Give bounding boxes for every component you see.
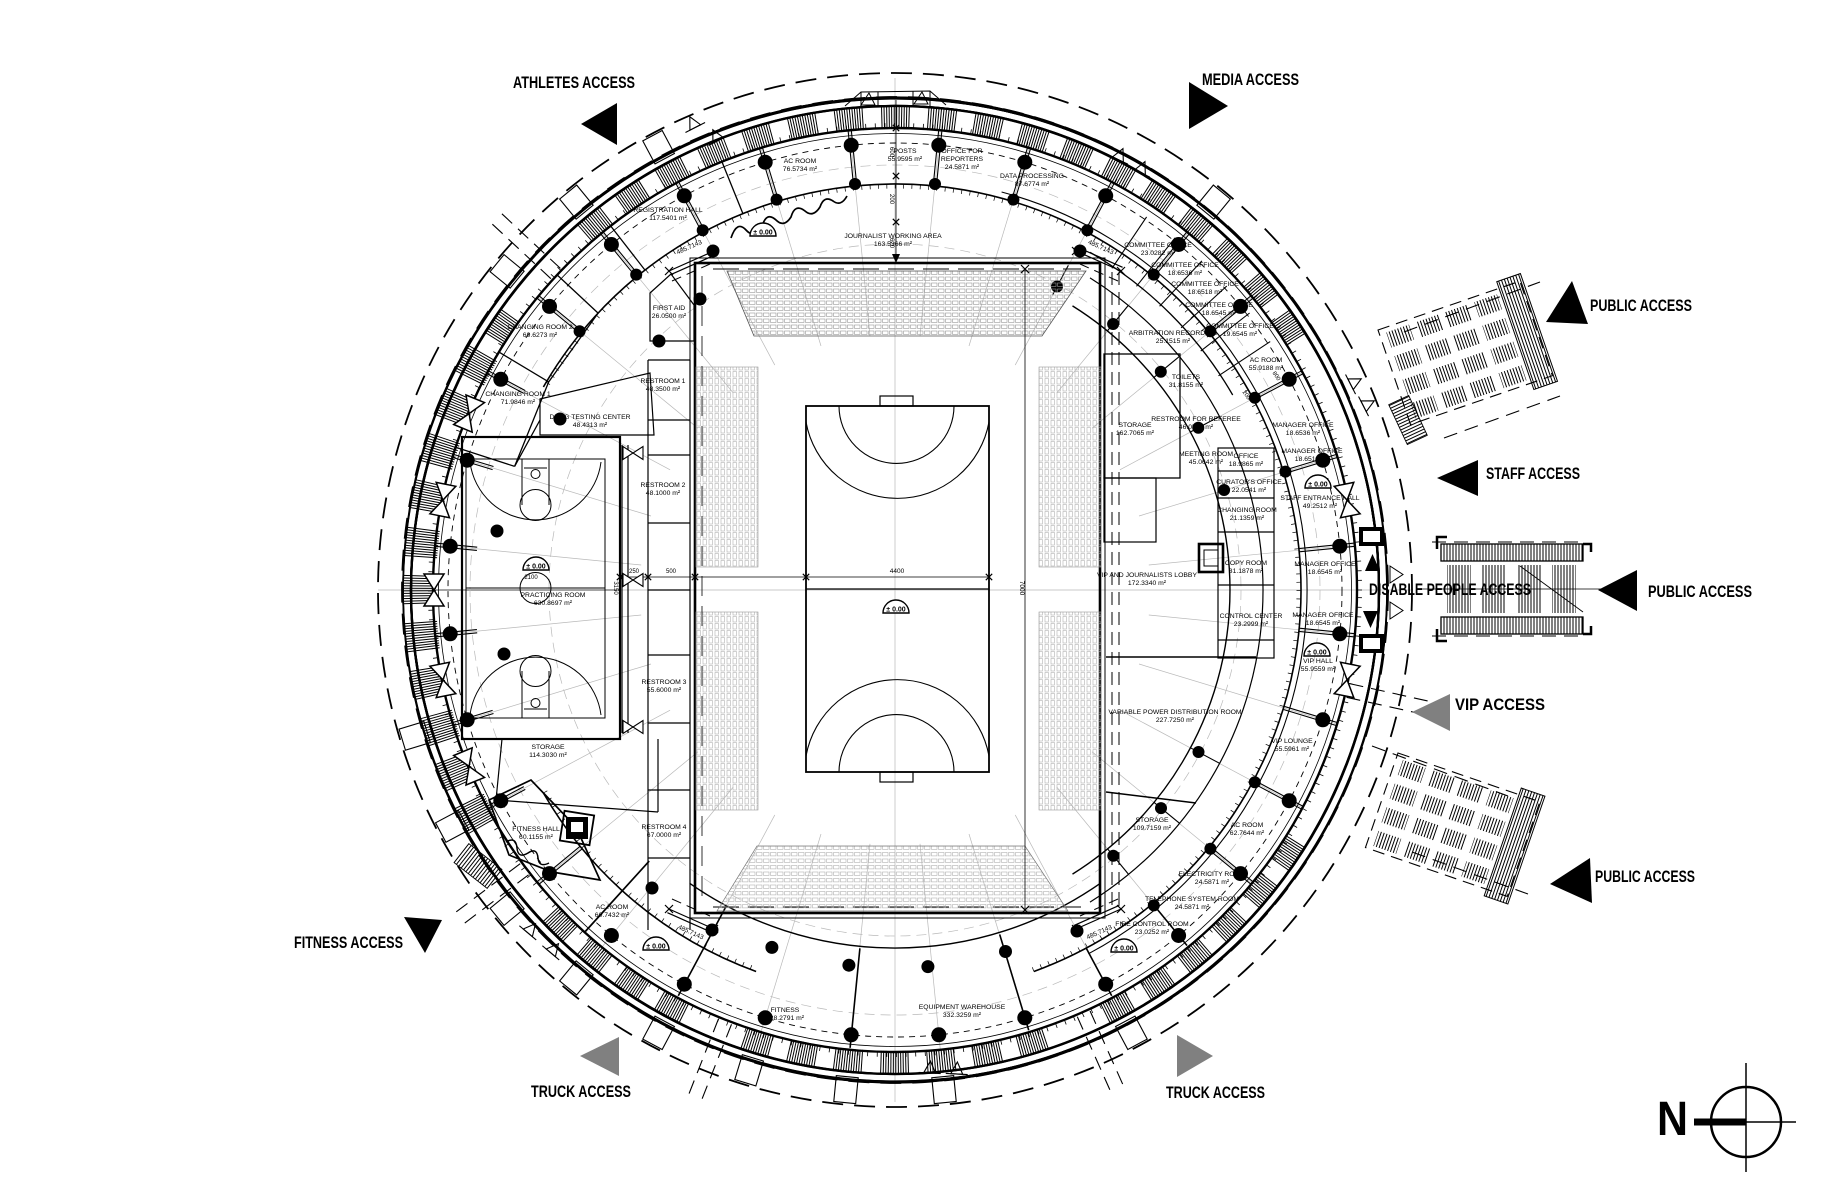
svg-text:PUBLIC ACCESS: PUBLIC ACCESS [1590, 296, 1692, 315]
svg-text:48.3500 m²: 48.3500 m² [646, 386, 681, 393]
svg-text:TRUCK ACCESS: TRUCK ACCESS [1166, 1083, 1265, 1102]
svg-text:MANAGER OFFICE: MANAGER OFFICE [1292, 612, 1354, 619]
svg-text:162.7065 m²: 162.7065 m² [1116, 430, 1155, 437]
svg-text:76.5734 m²: 76.5734 m² [783, 166, 818, 173]
svg-text:FIRE CONTROL ROOM: FIRE CONTROL ROOM [1115, 921, 1189, 928]
svg-text:± 0.00: ± 0.00 [1308, 482, 1328, 489]
svg-text:COMMITTEE OFFICE: COMMITTEE OFFICE [1206, 323, 1274, 330]
svg-text:48.4313 m²: 48.4313 m² [573, 422, 608, 429]
svg-text:EQUIPMENT WAREHOUSE: EQUIPMENT WAREHOUSE [919, 1004, 1006, 1011]
svg-text:45.0642 m²: 45.0642 m² [1189, 459, 1224, 466]
svg-text:CHANGING ROOM 2: CHANGING ROOM 2 [507, 324, 573, 331]
svg-text:19.6545 m²: 19.6545 m² [1223, 331, 1258, 338]
svg-text:227.7250 m²: 227.7250 m² [1156, 717, 1195, 724]
svg-text:23.0282 m²: 23.0282 m² [1141, 250, 1176, 257]
svg-text:RESTROOM 2: RESTROOM 2 [641, 482, 686, 489]
svg-text:N: N [1657, 1093, 1688, 1146]
svg-text:55.9595 m²: 55.9595 m² [888, 156, 923, 163]
svg-text:18.6545 m²: 18.6545 m² [1306, 620, 1341, 627]
svg-text:AC ROOM: AC ROOM [784, 158, 817, 165]
svg-text:CURATOR'S OFFICE: CURATOR'S OFFICE [1216, 479, 1282, 486]
svg-text:55.9188 m²: 55.9188 m² [1249, 365, 1284, 372]
svg-text:60.1155 m²: 60.1155 m² [519, 834, 554, 841]
svg-text:± 0.00: ± 0.00 [886, 607, 906, 614]
svg-text:31.8155 m²: 31.8155 m² [1169, 382, 1204, 389]
svg-text:DATA PROCESSING: DATA PROCESSING [1000, 173, 1064, 180]
svg-text:48.1000 m²: 48.1000 m² [646, 490, 681, 497]
svg-text:2100: 2100 [524, 575, 538, 581]
svg-text:18.6518 m²: 18.6518 m² [1295, 456, 1330, 463]
svg-text:21.1359 m²: 21.1359 m² [1230, 515, 1265, 522]
svg-text:3150: 3150 [612, 581, 618, 595]
svg-text:COMMITTEE OFFICE: COMMITTEE OFFICE [1171, 281, 1239, 288]
svg-text:69.6273 m²: 69.6273 m² [523, 332, 558, 339]
svg-text:18.6536 m²: 18.6536 m² [1286, 430, 1321, 437]
svg-text:200: 200 [888, 194, 894, 205]
svg-text:MANAGER OFFICE: MANAGER OFFICE [1294, 561, 1356, 568]
svg-text:23.0252 m²: 23.0252 m² [1135, 929, 1170, 936]
svg-text:332.3259 m²: 332.3259 m² [943, 1012, 982, 1019]
svg-text:630.8697 m²: 630.8697 m² [534, 600, 573, 607]
svg-text:FIRST AID: FIRST AID [653, 305, 685, 312]
svg-text:MEETING ROOM: MEETING ROOM [1179, 451, 1233, 458]
svg-text:67.0000 m²: 67.0000 m² [647, 832, 682, 839]
svg-text:172.3340 m²: 172.3340 m² [1128, 580, 1167, 587]
svg-text:22.0541 m²: 22.0541 m² [1232, 487, 1267, 494]
svg-text:250: 250 [629, 569, 640, 575]
svg-text:TELEPHONE SYSTEM ROOM: TELEPHONE SYSTEM ROOM [1145, 896, 1239, 903]
svg-text:18.6518 m²: 18.6518 m² [1188, 289, 1223, 296]
svg-text:REGISTRATION HALL: REGISTRATION HALL [633, 207, 703, 214]
svg-text:± 0.00: ± 0.00 [1307, 650, 1327, 657]
svg-text:PUBLIC ACCESS: PUBLIC ACCESS [1648, 582, 1752, 601]
svg-text:VIP AND JOURNALISTS LOBBY: VIP AND JOURNALISTS LOBBY [1097, 572, 1197, 579]
svg-text:ATHLETES ACCESS: ATHLETES ACCESS [513, 73, 635, 92]
svg-text:RESTROOM 3: RESTROOM 3 [642, 679, 687, 686]
svg-text:60.7432 m²: 60.7432 m² [595, 912, 630, 919]
svg-text:OFFICE FOR: OFFICE FOR [941, 148, 982, 155]
svg-text:RESTROOM 4: RESTROOM 4 [642, 824, 687, 831]
svg-text:71.9846 m²: 71.9846 m² [501, 399, 536, 406]
svg-text:55.9559 m²: 55.9559 m² [1301, 666, 1336, 673]
svg-text:COPY ROOM: COPY ROOM [1225, 560, 1268, 567]
svg-text:MANAGER OFFICE: MANAGER OFFICE [1272, 422, 1334, 429]
svg-text:REPORTERS: REPORTERS [941, 156, 984, 163]
svg-text:18.9865 m²: 18.9865 m² [1229, 461, 1264, 468]
svg-text:46.0576 m²: 46.0576 m² [1179, 424, 1214, 431]
svg-text:VARIABLE POWER DISTRIBUTION RO: VARIABLE POWER DISTRIBUTION ROOM [1108, 709, 1242, 716]
svg-text:PUBLIC ACCESS: PUBLIC ACCESS [1595, 867, 1695, 886]
svg-text:RESTROOM FOR REFEREE: RESTROOM FOR REFEREE [1151, 416, 1241, 423]
svg-text:ELECTRICITY ROOM: ELECTRICITY ROOM [1178, 871, 1245, 878]
svg-text:ARBITRATION RECORDING: ARBITRATION RECORDING [1129, 330, 1218, 337]
svg-text:RESTROOM 1: RESTROOM 1 [641, 378, 686, 385]
svg-text:AC ROOM: AC ROOM [1250, 357, 1283, 364]
svg-text:18.6545 m²: 18.6545 m² [1308, 569, 1343, 576]
svg-text:MANAGER OFFICE: MANAGER OFFICE [1281, 448, 1343, 455]
svg-text:STORAGE: STORAGE [531, 744, 565, 751]
svg-text:STAFF ACCESS: STAFF ACCESS [1486, 464, 1580, 483]
svg-text:TRUCK ACCESS: TRUCK ACCESS [531, 1082, 631, 1101]
svg-text:TOILETS: TOILETS [1172, 374, 1201, 381]
svg-text:FITNESS: FITNESS [771, 1007, 800, 1014]
svg-text:AC ROOM: AC ROOM [1231, 822, 1264, 829]
svg-text:18.6536 m²: 18.6536 m² [1168, 270, 1203, 277]
svg-text:163.5366 m²: 163.5366 m² [874, 241, 913, 248]
svg-text:55.5961 m²: 55.5961 m² [1275, 746, 1310, 753]
svg-text:18.6545 m²: 18.6545 m² [1202, 310, 1237, 317]
svg-text:FITNESS HALL: FITNESS HALL [512, 826, 560, 833]
svg-text:AC ROOM: AC ROOM [596, 904, 629, 911]
svg-text:PRACTICING ROOM: PRACTICING ROOM [521, 592, 586, 599]
svg-text:31.1878 m²: 31.1878 m² [1229, 568, 1264, 575]
svg-text:24.5871 m²: 24.5871 m² [945, 164, 980, 171]
svg-text:MEDIA ACCESS: MEDIA ACCESS [1202, 70, 1299, 89]
svg-text:25.1515 m²: 25.1515 m² [1156, 338, 1191, 345]
svg-text:COMMITTEE OFFICE: COMMITTEE OFFICE [1185, 302, 1253, 309]
svg-text:23.2999 m²: 23.2999 m² [1234, 621, 1269, 628]
svg-text:± 0.00: ± 0.00 [1114, 946, 1134, 953]
svg-text:CHANGING ROOM: CHANGING ROOM [1217, 507, 1277, 514]
svg-text:FITNESS ACCESS: FITNESS ACCESS [294, 933, 403, 952]
svg-text:JOURNALIST WORKING AREA: JOURNALIST WORKING AREA [844, 233, 942, 240]
svg-text:62.7644 m²: 62.7644 m² [1230, 830, 1265, 837]
svg-text:228.2791 m²: 228.2791 m² [766, 1015, 805, 1022]
svg-text:55.6000 m²: 55.6000 m² [647, 687, 682, 694]
svg-text:VIP HALL: VIP HALL [1303, 658, 1333, 665]
svg-text:± 0.00: ± 0.00 [753, 230, 773, 237]
svg-text:114.3030 m²: 114.3030 m² [529, 752, 567, 759]
svg-text:VIP LOUNGE: VIP LOUNGE [1271, 738, 1313, 745]
svg-text:DISABLE PEOPLE ACCESS: DISABLE PEOPLE ACCESS [1369, 580, 1531, 599]
svg-text:24.5871 m²: 24.5871 m² [1195, 879, 1230, 886]
svg-text:24.5871 m²: 24.5871 m² [1175, 904, 1210, 911]
svg-text:49.2512 m²: 49.2512 m² [1303, 503, 1338, 510]
svg-text:4400: 4400 [890, 568, 905, 575]
svg-text:± 0.00: ± 0.00 [526, 564, 546, 571]
svg-text:CONTROL CENTER: CONTROL CENTER [1220, 613, 1283, 620]
svg-text:± 0.00: ± 0.00 [646, 944, 666, 951]
svg-text:STORAGE: STORAGE [1118, 422, 1152, 429]
svg-text:OFFICE: OFFICE [1234, 453, 1259, 460]
svg-text:STORAGE: STORAGE [1135, 817, 1169, 824]
svg-text:117.5401 m²: 117.5401 m² [649, 215, 687, 222]
svg-text:COMMITTEE OFFICE: COMMITTEE OFFICE [1124, 242, 1192, 249]
svg-text:7000: 7000 [1018, 581, 1025, 596]
svg-text:109.7159 m²: 109.7159 m² [1133, 825, 1172, 832]
svg-text:CHANGING ROOM 1: CHANGING ROOM 1 [485, 391, 551, 398]
svg-text:VIP ACCESS: VIP ACCESS [1455, 695, 1545, 714]
svg-text:DRUG TESTING CENTER: DRUG TESTING CENTER [549, 414, 630, 421]
svg-text:26.0500 m²: 26.0500 m² [652, 313, 687, 320]
svg-text:87.6774 m²: 87.6774 m² [1015, 181, 1050, 188]
svg-text:POSTS: POSTS [893, 148, 917, 155]
svg-text:500: 500 [666, 569, 677, 575]
svg-text:COMMITTEE OFFICE: COMMITTEE OFFICE [1151, 262, 1219, 269]
